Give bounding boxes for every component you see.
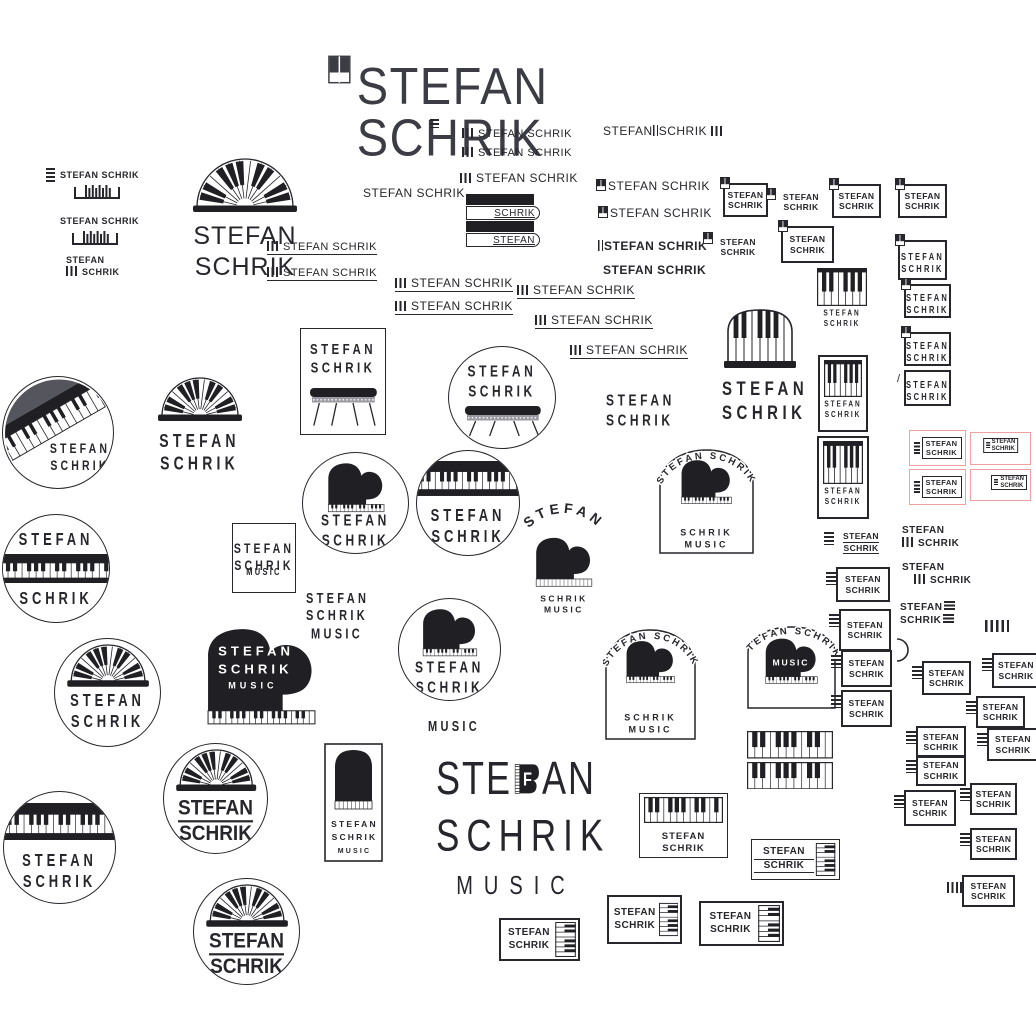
logo-text-line: MUSIC	[428, 719, 480, 737]
wordmark-line2: SCHRIK	[436, 811, 596, 862]
logo-text-line: SCHRIK	[926, 487, 958, 496]
brand-badge-logo: STEFANSCHRIK	[841, 690, 888, 723]
logo-text-line: SCHRIK	[995, 745, 1031, 755]
logo-text-line: SCHRIK	[906, 304, 949, 316]
double-piano-key-icon	[829, 177, 839, 195]
logo-text-line: STEFAN SCHRIK	[363, 186, 465, 201]
vertical-keys-icon	[758, 905, 780, 942]
business-card-mockup: STEFANSCHRIK	[970, 469, 1031, 501]
logo-text-line: STEFAN SCHRIK	[598, 206, 712, 222]
circle-logo-grand: STEFANSCHRIK	[302, 452, 409, 554]
logo-text-line: STEFAN	[783, 192, 819, 202]
logo-text-line: SCHRIK	[906, 352, 949, 364]
piano-keys-glyph	[711, 126, 724, 136]
keyboard-band	[416, 461, 520, 496]
logo-text-line: SCHRIK	[4, 871, 115, 892]
logo-text-line: STEFAN	[503, 927, 555, 939]
brand-text: STEFAN SCHRIK	[603, 263, 706, 278]
logo-text-line: STEFAN	[926, 478, 958, 487]
stacked-keys-glyph	[943, 614, 954, 624]
logo-text-line: STEFAN	[824, 400, 861, 410]
logo-text-line: STEFAN	[926, 439, 958, 448]
logo-text-line: STEFANSCHRIK	[603, 124, 727, 139]
brand-text-underlined: STEFAN SCHRIK	[517, 281, 635, 299]
arched-frame-piano-logo: STEFAN SCHRIKSCHRIKMUSIC	[657, 442, 756, 561]
logo-text-line: SCHRIK	[905, 201, 941, 211]
brand-badge-logo: STEFANSCHRIK	[841, 650, 888, 683]
logo-text-line: SCHRIK	[754, 860, 814, 873]
brand-badge-logo: STEFANSCHRIK	[839, 609, 887, 647]
side-piano-icon	[309, 386, 378, 427]
logo-text-line: STEFAN SCHRIK	[603, 263, 706, 278]
fan-keys-icon	[61, 644, 155, 687]
brand-badge-logo: STEFANSCHRIK	[723, 183, 764, 213]
piano-key-stack-logo: SCHRIK STEFAN	[466, 194, 540, 247]
fan-keys-icon	[170, 749, 262, 791]
key-pair-glyph	[653, 125, 658, 136]
brand-text-line: STEFAN SCHRIK	[570, 343, 688, 359]
brand-badge-logo: / STEFANSCHRIK	[904, 370, 947, 402]
fan-keys-icon	[200, 884, 294, 927]
logo-text-line: SCHRIK	[971, 891, 1007, 901]
brand-badge-logo: STEFANSCHRIK	[916, 755, 962, 782]
vertical-keys-icon	[555, 922, 576, 957]
side-piano-icon	[464, 404, 542, 437]
keyboard-strip	[747, 731, 833, 759]
logo-text-line: SCHRIK	[703, 924, 758, 936]
stacked-keys-glyph	[831, 695, 841, 708]
brand-text-underlined: STEFAN SCHRIK	[267, 263, 377, 281]
logo-text-line: SCHRIK	[790, 245, 826, 255]
logo-text-line: SCHRIK	[611, 920, 659, 932]
brand-badge-logo: STEFANSCHRIK	[779, 188, 823, 216]
piano-keys-badge: STEFANSCHRIK	[818, 355, 868, 432]
keys-side-badge-logo: STEFANSCHRIK	[751, 839, 840, 880]
piano-keys-glyph	[267, 267, 280, 277]
hanging-keys-icon	[824, 360, 862, 397]
keyboard-block	[747, 731, 833, 789]
logo-text-line: STEFAN	[923, 732, 959, 742]
logo-text-line: SCHRIK	[783, 202, 819, 212]
logo-text-line: STEFAN	[4, 850, 115, 871]
svg-text:STEFAN: STEFAN	[218, 643, 294, 658]
logo-text-line: SCHRIK	[843, 543, 879, 554]
svg-text:SCHRIK: SCHRIK	[540, 593, 588, 603]
logo-text-line: STEFAN	[754, 846, 814, 859]
brand-badge-logo: STEFANSCHRIK	[832, 184, 877, 214]
piano-keys-badge: STEFANSCHRIK	[817, 436, 869, 519]
double-piano-key-icon	[778, 219, 788, 237]
brand-badge-logo: STEFANSCHRIK	[970, 783, 1013, 811]
fan-keys-icon	[171, 158, 319, 212]
logo-text-line: SCHRIK	[399, 677, 500, 696]
logo-text-line: STEFAN	[722, 378, 798, 402]
logo-text-line: STEFAN	[849, 658, 885, 668]
logo-text-line: STEFAN	[912, 798, 948, 808]
brand-text: MUSIC	[428, 719, 480, 732]
logo-text-line: STEFAN	[824, 487, 861, 497]
logo-text-line: STEFAN SCHRIK	[598, 239, 707, 254]
svg-text:STEFAN: STEFAN	[331, 819, 378, 829]
logo-text-line: MUSIC	[234, 566, 294, 578]
black-key-bar	[466, 221, 534, 232]
logo-text-line: STEFAN SCHRIK	[460, 171, 578, 186]
keyboard-band	[2, 554, 110, 583]
stacked-keys-glyph	[912, 666, 922, 679]
logo-text-line: STEFAN	[66, 255, 120, 266]
brand-badge-logo: STEFANSCHRIK	[836, 529, 886, 556]
logo-text-line: STEFAN	[303, 511, 408, 530]
wordmark-line3: MUSIC	[436, 872, 596, 901]
stacked-keys-glyph	[914, 481, 920, 493]
logo-text-line: SCHRIK	[301, 359, 385, 378]
keys-side-badge-logo: STEFANSCHRIK	[607, 895, 682, 944]
piano-keys-glyph	[985, 620, 1009, 632]
brand-text-line: STEFAN SCHRIK	[535, 313, 653, 329]
piano-keys-glyph	[267, 241, 280, 251]
circle-logo-arch: STEFANSCHRIK	[54, 638, 161, 747]
brand-badge-logo: STEFANSCHRIK	[976, 696, 1021, 724]
double-piano-key-icon	[895, 233, 905, 251]
arched-frame-piano-logo: STEFAN SCHRIKMUSIC	[745, 619, 838, 716]
piano-keys-glyph	[462, 128, 475, 138]
logo-text-line: STEFAN	[901, 251, 944, 263]
logo-text-line: STEFAN SCHRIK	[462, 147, 572, 160]
brand-text-line: STEFAN SCHRIK	[395, 276, 513, 292]
svg-text:STEFAN: STEFAN	[520, 500, 608, 531]
arched-frame-piano-logo: STEFAN SCHRIKSCHRIKMUSIC	[603, 622, 698, 747]
keys-side-badge-logo: STEFANSCHRIK	[699, 901, 784, 946]
wordmark-part: AN	[542, 752, 596, 806]
logo-text-line: SCHRIK	[845, 585, 881, 595]
brand-text: STEFANSCHRIK	[606, 391, 662, 420]
logo-text-line: STEFAN	[55, 690, 160, 711]
piano-keys-glyph	[395, 278, 408, 288]
fan-piano-logo: STEFANSCHRIK	[142, 377, 257, 464]
stacked-keys-glyph	[829, 614, 839, 627]
logo-text-line: STEFAN	[703, 911, 758, 923]
brand-badge-logo: STEFANSCHRIK	[962, 875, 1011, 903]
svg-text:MUSIC: MUSIC	[685, 539, 729, 549]
logo-text-line: STEFAN	[900, 601, 957, 614]
logo-text-line: SCHRIK	[640, 843, 727, 855]
brand-text-underlined: STEFAN SCHRIK	[535, 311, 653, 329]
vertical-keys-icon	[814, 843, 837, 876]
business-card-mockup: STEFANSCHRIK	[909, 469, 966, 505]
grand-piano-icon	[323, 462, 389, 514]
double-piano-key-icon	[766, 187, 776, 205]
stefan-schrik-music-wordmark: STE F AN SCHRIK MUSIC	[436, 752, 596, 869]
logo-text-line: STEFAN	[720, 237, 756, 247]
svg-text:MUSIC: MUSIC	[544, 604, 584, 614]
brand-text-line: STEFAN SCHRIK	[395, 299, 513, 315]
stacked-keys-glyph	[894, 795, 904, 808]
mini-logo: STEFANSCHRIK	[983, 436, 1019, 454]
brand-text: STEFANSCHRIK	[902, 525, 959, 550]
piano-keys-glyph	[902, 537, 915, 547]
logo-text-line: STEFAN	[995, 734, 1031, 744]
logo-text-line: SCHRIK	[839, 201, 875, 211]
white-key-bar: STEFAN	[466, 233, 540, 247]
brand-badge-logo: STEFANSCHRIK	[922, 661, 967, 691]
stacked-keys-glyph	[430, 119, 439, 128]
brand-badge-logo: STEFANSCHRIK	[904, 284, 947, 314]
stacked-keys-glyph	[906, 760, 916, 773]
brand-text: STEFANSCHRIK	[900, 601, 957, 627]
logo-text-line: STEFAN SCHRIK	[462, 128, 572, 141]
logo-text-line: STEFAN	[843, 531, 879, 542]
keyboard-band	[3, 803, 116, 840]
circle-logo-band: STEFAN SCHRIK	[2, 514, 110, 623]
circle-logo-side: STEFANSCHRIK	[448, 346, 556, 449]
brand-badge-logo: STEFANSCHRIK	[781, 226, 830, 259]
logo-text-line: SCHRIK	[901, 263, 944, 275]
circle-logo-bandtop: STEFANSCHRIK	[3, 791, 116, 904]
brand-badge-logo: STEFANSCHRIK	[987, 728, 1035, 757]
circle-logo-diag: STEFANSCHRIK	[2, 376, 114, 489]
svg-text:SCHRIK: SCHRIK	[332, 832, 378, 842]
brand-text: STEFANSCHRIK	[902, 562, 971, 587]
logo-text-line: SCHRIK	[923, 771, 959, 781]
logo-text-line: SCHRIK	[449, 381, 555, 400]
double-piano-key-icon	[720, 176, 730, 194]
piano-keys-glyph	[462, 147, 475, 157]
logo-text-line: SCHRIK	[926, 448, 958, 457]
keyboard-strip	[747, 762, 833, 790]
brand-text: STEFAN SCHRIK	[462, 147, 572, 160]
brand-text: STEFANSCHRIK	[66, 255, 120, 278]
mini-logo: STEFANSCHRIK	[991, 473, 1027, 491]
double-piano-key-icon	[895, 177, 905, 195]
logo-text-line: SCHRIK	[923, 742, 959, 752]
logo-text-line: SCHRIK	[823, 319, 860, 329]
logo-text-line: SCHRIK	[303, 530, 408, 549]
brand-badge-logo: STEFANSCHRIK	[904, 790, 952, 822]
logo-text-line: SCHRIK	[912, 808, 948, 818]
piano-keys-glyph	[535, 315, 548, 325]
brand-text: STEFANSCHRIK	[603, 124, 727, 139]
arc-mark	[895, 637, 910, 668]
logo-text-line: STEFAN	[906, 292, 949, 304]
key-pair-glyph	[598, 240, 603, 251]
stacked-keys-glyph	[982, 658, 992, 671]
vertical-keys-icon	[659, 899, 679, 940]
logo-text-line: SCHRIK	[929, 678, 965, 688]
arch-piano-logo: STEFANSCHRIK	[722, 304, 798, 415]
logo-text-line: SCHRIK	[976, 844, 1012, 854]
brand-text: STEFAN SCHRIK	[60, 216, 139, 227]
piano-keys-glyph	[914, 574, 927, 584]
svg-text:SCHRIK: SCHRIK	[680, 527, 733, 537]
keys-side-badge-logo: STEFANSCHRIK	[499, 918, 580, 961]
logo-text-line: STEFAN	[905, 191, 941, 201]
piano-keys-glyph	[517, 285, 530, 295]
double-piano-key-icon	[598, 206, 608, 222]
brand-text: STEFAN SCHRIK	[363, 186, 465, 201]
brand-text-line: STEFAN SCHRIK	[267, 267, 377, 281]
keyboard-strip	[644, 797, 723, 823]
double-piano-key-icon	[703, 231, 713, 249]
logo-text-line: STEFAN	[929, 668, 965, 678]
brand-text: STEFAN SCHRIK	[596, 179, 710, 195]
piano-keys-glyph	[947, 882, 962, 893]
logo-text-line: STEFAN	[399, 658, 500, 677]
logo-text-line: SCHRIK	[998, 671, 1034, 681]
brand-text-underlined: STEFAN SCHRIK	[570, 341, 688, 359]
logo-text-line: STEFAN	[611, 907, 659, 919]
logo-text-line: STEFAN	[998, 660, 1034, 670]
brand-text-line: STEFAN SCHRIK	[517, 283, 635, 299]
logo-text-line: STEFAN	[417, 505, 519, 526]
logo-text-line: SCHRIK	[142, 453, 257, 476]
piano-keys-badge: STEFANSCHRIK	[816, 265, 868, 335]
circle-logo-bandtop: STEFANSCHRIK	[416, 450, 520, 556]
grand-piano-silhouette-logo: STEFANSCHRIKMUSIC	[202, 626, 321, 737]
logo-text-line: STEFAN	[839, 191, 875, 201]
stacked-keys-glyph	[966, 701, 976, 714]
brand-badge-logo: STEFANSCHRIK	[904, 332, 947, 362]
double-piano-key-icon	[596, 179, 606, 195]
business-card-mockup: STEFANSCHRIK	[970, 432, 1031, 465]
logo-text-line: SCHRIK	[503, 940, 555, 952]
logo-text-line: STEFAN	[976, 789, 1012, 799]
logo-text-line: SCHRIK	[3, 588, 109, 609]
piano-keys-glyph	[395, 301, 408, 311]
brand-text-line: STEFAN SCHRIK	[267, 241, 377, 255]
svg-text:SCHRIK: SCHRIK	[218, 661, 292, 676]
circle-logo-arch: STEFANSCHRIK	[163, 743, 268, 854]
hanging-keys-icon	[817, 268, 867, 306]
stacked-keys-glyph	[831, 655, 841, 668]
svg-text:F: F	[523, 769, 532, 790]
stacked-keys-glyph	[960, 833, 970, 846]
logo-text-line: STEFAN	[142, 430, 257, 453]
fan-keys-icon	[144, 377, 256, 421]
logo-text-line: STEFAN	[301, 341, 385, 360]
square-music-logo: STEFANSCHRIKMUSIC	[232, 523, 296, 593]
logo-text-line: STEFAN	[49, 441, 111, 458]
brand-text: STEFAN SCHRIK	[460, 171, 578, 186]
svg-text:SCHRIK: SCHRIK	[624, 712, 677, 722]
logo-text-line: SCHRIK	[728, 200, 764, 210]
logo-text-line: STEFAN	[971, 881, 1007, 891]
logo-text-line: STEFAN	[902, 525, 959, 537]
brand-badge-logo: STEFANSCHRIK	[992, 653, 1036, 684]
card-logo-round: STEFANSCHRIKMUSIC	[324, 743, 383, 867]
logo-text-line: SCHRIK	[824, 497, 861, 507]
brand-badge-logo: STEFANSCHRIK	[836, 567, 886, 598]
logo-text-line: STEFAN	[194, 929, 299, 954]
logo-text-line: SCHRIK	[306, 609, 368, 627]
logo-text-line: STEFAN	[728, 190, 764, 200]
bracket-keys-icon	[74, 184, 120, 204]
logo-text-line: STEFAN	[306, 591, 368, 609]
circle-logo-arch: STEFANSCHRIK	[193, 878, 300, 985]
logo-text-line: STEFAN	[845, 574, 881, 584]
svg-text:MUSIC: MUSIC	[228, 681, 277, 691]
logo-text-line: STEFAN	[606, 391, 662, 410]
logo-text-line: SCHRIK	[55, 711, 160, 732]
logo-text-line: STEFAN	[449, 362, 555, 381]
brand-text-underlined: STEFAN SCHRIK	[395, 274, 513, 292]
logo-text-line: SCHRIK	[976, 799, 1012, 809]
stacked-keys-glyph	[824, 532, 834, 545]
brand-badge-logo: STEFANSCHRIK	[916, 726, 962, 754]
logo-text-line: SCHRIK	[164, 822, 267, 847]
logo-text-line: STEFAN SCHRIK	[596, 179, 710, 195]
logo-text-line: SCHRIK	[900, 614, 957, 627]
double-piano-key-icon	[328, 54, 351, 85]
stacked-keys-glyph	[944, 601, 955, 611]
logo-design-sheet: STEFAN SCHRIKSTEFAN SCHRIKSTEFAN SCHRIKS…	[0, 0, 1036, 1036]
logo-text-line: SCHRIK	[417, 526, 519, 547]
logo-text-line: SCHRIK	[914, 574, 971, 587]
logo-text-line: SCHRIK	[722, 402, 798, 426]
logo-text-line: STEFAN	[823, 309, 860, 319]
wordmark-part: STE	[436, 752, 512, 806]
brand-badge-logo: STEFANSCHRIK	[898, 184, 943, 214]
logo-text-line: STEFAN SCHRIK	[60, 216, 139, 227]
circle-logo-grand: STEFANSCHRIK	[398, 598, 501, 701]
logo-text-line: STEFAN	[906, 340, 949, 352]
logo-text-line: SCHRIK	[847, 630, 883, 640]
logo-text-line: STEFAN	[847, 620, 883, 630]
business-card-mockup: STEFANSCHRIK	[909, 430, 966, 466]
logo-text-line: SCHRIK	[720, 247, 756, 257]
stacked-keys-glyph	[960, 788, 970, 801]
brand-text-underlined: STEFAN SCHRIK	[395, 297, 513, 315]
logo-text-line: STEFAN	[164, 796, 267, 821]
logo-text-line: SCHRIK	[849, 669, 885, 679]
brand-text: STEFAN SCHRIK	[598, 206, 712, 222]
logo-text-line: STEFAN	[923, 760, 959, 770]
arc-text-piano-logo: STEFANSCHRIKMUSIC	[518, 497, 610, 622]
piano-f-icon: F	[514, 752, 540, 806]
hanging-keys-icon	[823, 441, 863, 484]
logo-text-line: STEFAN SCHRIK	[60, 170, 139, 181]
logo-text-line: SCHRIK	[824, 410, 861, 420]
logo-text-line: SCHRIK	[66, 266, 120, 278]
brand-text-underlined: STEFAN SCHRIK	[267, 237, 377, 255]
stacked-keys-glyph	[906, 731, 916, 744]
logo-text-line: SCHRIK	[906, 391, 949, 403]
stacked-keys-glyph	[826, 572, 836, 585]
logo-text-line: STEFAN	[234, 541, 294, 558]
brand-text: STEFAN SCHRIK	[598, 239, 707, 254]
logo-text-line: STEFAN	[976, 834, 1012, 844]
logo-text-line: SCHRIK	[194, 955, 299, 980]
logo-text-line: SCHRIK	[49, 458, 111, 475]
logo-text-line: SCHRIK	[606, 410, 662, 429]
stacked-keys-glyph	[977, 733, 987, 746]
logo-text-line: STEFAN	[849, 698, 885, 708]
svg-text:MUSIC: MUSIC	[338, 848, 372, 855]
brand-text: STEFAN SCHRIK	[462, 128, 572, 141]
logo-text-line: SCHRIK	[983, 712, 1019, 722]
brand-badge-logo: STEFANSCHRIK	[716, 232, 760, 262]
brand-badge-logo: STEFANSCHRIK	[970, 828, 1013, 856]
piano-keys-glyph	[66, 266, 79, 276]
grand-piano-icon	[418, 608, 482, 658]
piano-keys-glyph	[570, 345, 583, 355]
logo-text-line: STEFAN	[983, 702, 1019, 712]
slash-mark: /	[897, 373, 900, 385]
logo-text-line: STEFAN	[906, 379, 949, 391]
svg-text:MUSIC: MUSIC	[772, 658, 809, 668]
logo-text-line: SCHRIK	[849, 709, 885, 719]
stacked-keys-glyph	[914, 442, 920, 454]
logo-text-line: SCHRIK	[902, 537, 959, 550]
